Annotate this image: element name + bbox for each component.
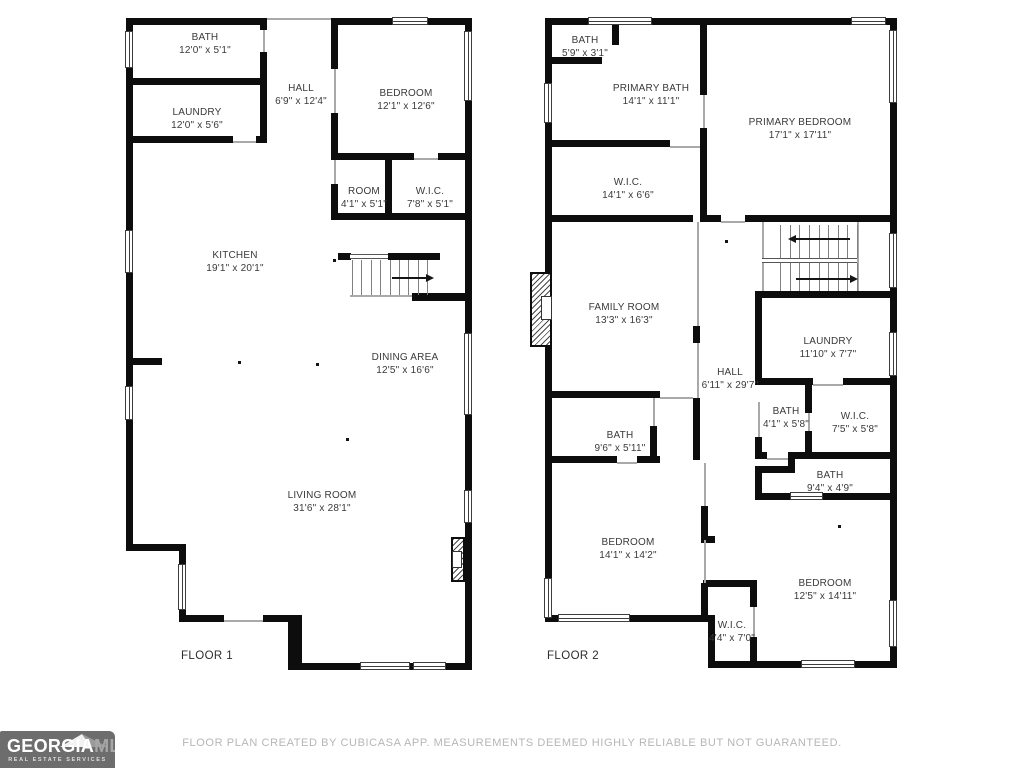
wall [545, 140, 670, 147]
window [801, 660, 855, 668]
window-pane-line [468, 334, 469, 414]
room-label-f2-primary-bedroom: PRIMARY BEDROOM17'1" x 17'11" [749, 116, 852, 142]
arrow-head-icon [426, 274, 434, 282]
wall [126, 78, 267, 85]
window-pane-line [468, 491, 469, 522]
fireplace-firebox [541, 296, 552, 320]
stair-tread [838, 225, 839, 258]
door-opening [617, 462, 637, 464]
wall [260, 52, 267, 143]
door-opening [267, 18, 331, 20]
room-label-f2-hall: HALL6'11" x 29'7" [702, 366, 759, 392]
window [889, 600, 897, 647]
window [464, 31, 472, 101]
room-label-f1-bedroom: BEDROOM12'1" x 12'6" [377, 87, 434, 113]
wall [693, 398, 700, 460]
window [125, 31, 133, 68]
window-pane-line [589, 21, 651, 22]
wall [126, 358, 162, 365]
stair-tread [828, 225, 829, 258]
wall [755, 291, 892, 298]
wall-node-dot [238, 361, 241, 364]
window [178, 564, 186, 610]
room-label-f2-bath-96: BATH9'6" x 5'11" [595, 429, 646, 455]
wall-node-dot [346, 438, 349, 441]
wall [755, 493, 790, 500]
window [544, 578, 552, 618]
stair-tread [809, 225, 810, 258]
georgia-mls-logo: GEORGIAMLS REAL ESTATE SERVICES [0, 731, 115, 768]
logo-wordmark: GEORGIAMLS [7, 737, 115, 755]
stair-tread [352, 260, 353, 295]
wall [700, 128, 707, 147]
door-opening [813, 384, 843, 386]
wall [412, 293, 472, 301]
stair-tread [847, 263, 848, 291]
wall [700, 18, 707, 95]
door-opening [263, 30, 265, 52]
wall [331, 18, 338, 69]
wall-node-dot [725, 240, 728, 243]
window [464, 333, 472, 415]
wall [788, 452, 897, 459]
window [544, 83, 552, 123]
window [889, 332, 897, 376]
window-pane-line [791, 496, 822, 497]
room-label-f2-wic-75: W.I.C.7'5" x 5'8" [832, 410, 878, 436]
window-pane-line [129, 32, 130, 67]
door-opening [762, 222, 764, 291]
window [125, 386, 133, 420]
wall [545, 456, 617, 463]
wall-node-dot [316, 363, 319, 366]
window [125, 230, 133, 273]
window-pane-line [129, 231, 130, 272]
wall-node-dot [838, 525, 841, 528]
door-opening [703, 95, 705, 128]
stair-direction-arrow [392, 277, 426, 279]
wall [126, 136, 233, 143]
window-pane-line [129, 387, 130, 419]
wall [701, 583, 708, 621]
wall [700, 147, 707, 222]
window [413, 662, 446, 670]
wall [755, 452, 767, 459]
room-label-f2-wic-44: W.I.C.4'4" x 7'0" [709, 619, 755, 645]
door-opening [697, 222, 699, 326]
room-label-f2-laundry: LAUNDRY11'10" x 7'7" [800, 335, 857, 361]
stair-tread [780, 263, 781, 291]
arrow-head-icon [788, 235, 796, 243]
wall [701, 506, 708, 540]
room-label-f1-kitchen: KITCHEN19'1" x 20'1" [206, 249, 263, 275]
window [558, 614, 630, 622]
window [360, 662, 410, 670]
room-label-f1-wic: W.I.C.7'8" x 5'1" [407, 185, 453, 211]
wall [843, 378, 897, 385]
wall [126, 18, 267, 25]
door-opening [334, 160, 336, 184]
wall [438, 153, 472, 160]
window-pane-line [182, 565, 183, 609]
door-opening [704, 540, 706, 583]
stair-tread [371, 260, 372, 295]
stair-tread [799, 263, 800, 291]
wall [126, 544, 186, 551]
stair-tread [857, 225, 858, 258]
stair-tread [838, 263, 839, 291]
window-pane-line [802, 664, 854, 665]
door-opening [704, 463, 706, 506]
window [851, 17, 886, 25]
wall [745, 215, 892, 222]
window-pane-line [361, 666, 409, 667]
stair-tread [847, 225, 848, 258]
room-label-f2-bath-small: BATH5'9" x 3'1" [562, 34, 608, 60]
door-opening [224, 620, 263, 622]
stair-direction-arrow [796, 238, 850, 240]
door-opening [767, 458, 788, 460]
wall [388, 253, 440, 260]
wall [288, 615, 302, 670]
stair-tread [390, 260, 391, 295]
window-pane-line [893, 333, 894, 375]
wall [331, 153, 414, 160]
door-opening [653, 398, 655, 426]
disclaimer-text: FLOOR PLAN CREATED BY CUBICASA APP. MEAS… [0, 737, 1024, 749]
room-label-f2-bedroom-left: BEDROOM14'1" x 14'2" [599, 536, 656, 562]
stair-tread [780, 225, 781, 258]
wall [545, 215, 693, 222]
stair-railing [350, 254, 388, 259]
window-pane-line [893, 601, 894, 646]
window-pane-line [893, 234, 894, 287]
wall [703, 580, 757, 587]
door-opening [697, 343, 699, 398]
room-label-f1-hall: HALL6'9" x 12'4" [275, 82, 327, 108]
stair-tread [790, 263, 791, 291]
wall [637, 456, 660, 463]
window-pane-line [893, 31, 894, 102]
window-pane-line [559, 618, 629, 619]
wall [788, 452, 795, 473]
wall [545, 391, 660, 398]
room-label-f1-living: LIVING ROOM31'6" x 28'1" [288, 489, 357, 515]
wall [260, 18, 267, 30]
arrow-head-icon [850, 275, 858, 283]
wall [179, 615, 224, 622]
wall [693, 326, 700, 343]
window [889, 233, 897, 288]
window [392, 17, 428, 25]
door-opening [414, 158, 438, 160]
stair-tread [819, 225, 820, 258]
floor-plan-canvas: BATH12'0" x 5'1" LAUNDRY12'0" x 5'6" HAL… [0, 0, 1024, 768]
wall-node-dot [333, 259, 336, 262]
door-opening [233, 141, 256, 143]
window-pane-line [852, 21, 885, 22]
stair-tread [799, 225, 800, 258]
room-label-f2-bath-94: BATH9'4" x 4'9" [807, 469, 853, 495]
door-opening [660, 397, 693, 399]
window-pane-line [548, 579, 549, 617]
door-opening [670, 146, 700, 148]
wall [707, 215, 721, 222]
room-label-f2-primary-bath: PRIMARY BATH14'1" x 11'1" [613, 82, 689, 108]
door-opening [758, 402, 760, 437]
door-opening [334, 69, 336, 113]
window [588, 17, 652, 25]
door-opening [721, 221, 745, 223]
wall [126, 18, 133, 551]
fireplace-firebox [452, 551, 462, 568]
room-label-f2-wic-primary: W.I.C.14'1" x 6'6" [602, 176, 654, 202]
window [464, 490, 472, 523]
floor2-tag: FLOOR 2 [547, 650, 599, 662]
wall [331, 213, 472, 220]
logo-tagline: REAL ESTATE SERVICES [0, 757, 115, 763]
window-pane-line [468, 32, 469, 100]
room-label-f1-laundry: LAUNDRY12'0" x 5'6" [171, 106, 223, 132]
room-label-f1-room: ROOM4'1" x 5'1" [341, 185, 387, 211]
stair-tread [819, 263, 820, 291]
floor1-tag: FLOOR 1 [181, 650, 233, 662]
room-label-f2-bedroom-right: BEDROOM12'5" x 14'11" [794, 577, 856, 603]
wall [750, 580, 757, 607]
room-label-f2-bath-41: BATH4'1" x 5'8" [763, 405, 809, 431]
window [889, 30, 897, 103]
room-label-f1-bath: BATH12'0" x 5'1" [179, 31, 231, 57]
window-pane-line [548, 84, 549, 122]
stair-tread [380, 260, 381, 295]
window-pane-line [393, 21, 427, 22]
stair-direction-arrow [796, 278, 850, 280]
room-label-f1-dining: DINING AREA12'5" x 16'6" [372, 351, 439, 377]
stair-tread [809, 263, 810, 291]
window-pane-line [414, 666, 445, 667]
stair-tread [361, 260, 362, 295]
room-label-f2-family-room: FAMILY ROOM13'3" x 16'3" [589, 301, 660, 327]
stair-tread [828, 263, 829, 291]
door-opening [350, 295, 412, 297]
